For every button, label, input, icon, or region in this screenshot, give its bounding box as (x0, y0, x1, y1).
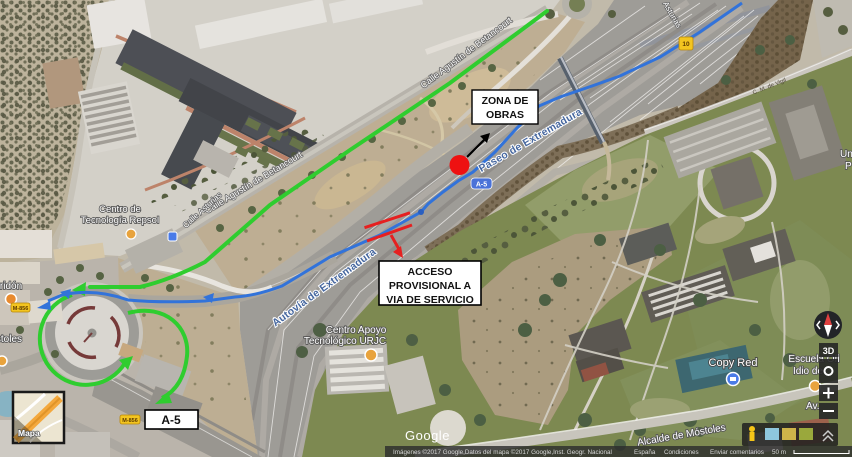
svg-text:VIA DE SERVICIO: VIA DE SERVICIO (386, 294, 474, 306)
svg-text:Enviar comentarios: Enviar comentarios (710, 449, 764, 456)
svg-text:Centro de: Centro de (99, 204, 141, 215)
svg-text:España: España (634, 449, 656, 456)
svg-text:M-856: M-856 (122, 418, 138, 424)
svg-text:Copy Red: Copy Red (709, 357, 758, 369)
svg-text:ZONA DE: ZONA DE (482, 95, 529, 107)
svg-text:M-856: M-856 (13, 306, 29, 312)
svg-text:OBRAS: OBRAS (486, 109, 524, 121)
svg-text:Idio de: Idio de (793, 366, 823, 377)
svg-text:Móstoles: Móstoles (0, 334, 22, 345)
svg-text:P: P (845, 161, 852, 172)
svg-text:Centro Apoyo: Centro Apoyo (326, 325, 387, 336)
svg-text:50 m: 50 m (772, 449, 786, 456)
svg-text:ACCESO: ACCESO (408, 266, 453, 278)
svg-text:Av.: Av. (806, 401, 820, 412)
svg-text:Mapa: Mapa (18, 428, 40, 438)
svg-text:10: 10 (682, 41, 690, 48)
svg-text:Tecnología Repsol: Tecnología Repsol (81, 215, 159, 226)
svg-text:Tecnológico URJC: Tecnológico URJC (304, 336, 386, 347)
svg-text:A-5: A-5 (476, 182, 487, 189)
svg-text:A-5: A-5 (161, 413, 181, 427)
svg-text:Google: Google (405, 428, 450, 443)
svg-text:Imágenes ©2017 Google,Datos de: Imágenes ©2017 Google,Datos del mapa ©20… (393, 448, 612, 456)
svg-text:PROVISIONAL A: PROVISIONAL A (389, 280, 472, 292)
svg-text:Uni: Uni (840, 149, 852, 160)
svg-text:Condiciones: Condiciones (664, 449, 699, 456)
svg-text:3D: 3D (823, 346, 835, 356)
svg-text:Meridón: Meridón (0, 281, 22, 292)
